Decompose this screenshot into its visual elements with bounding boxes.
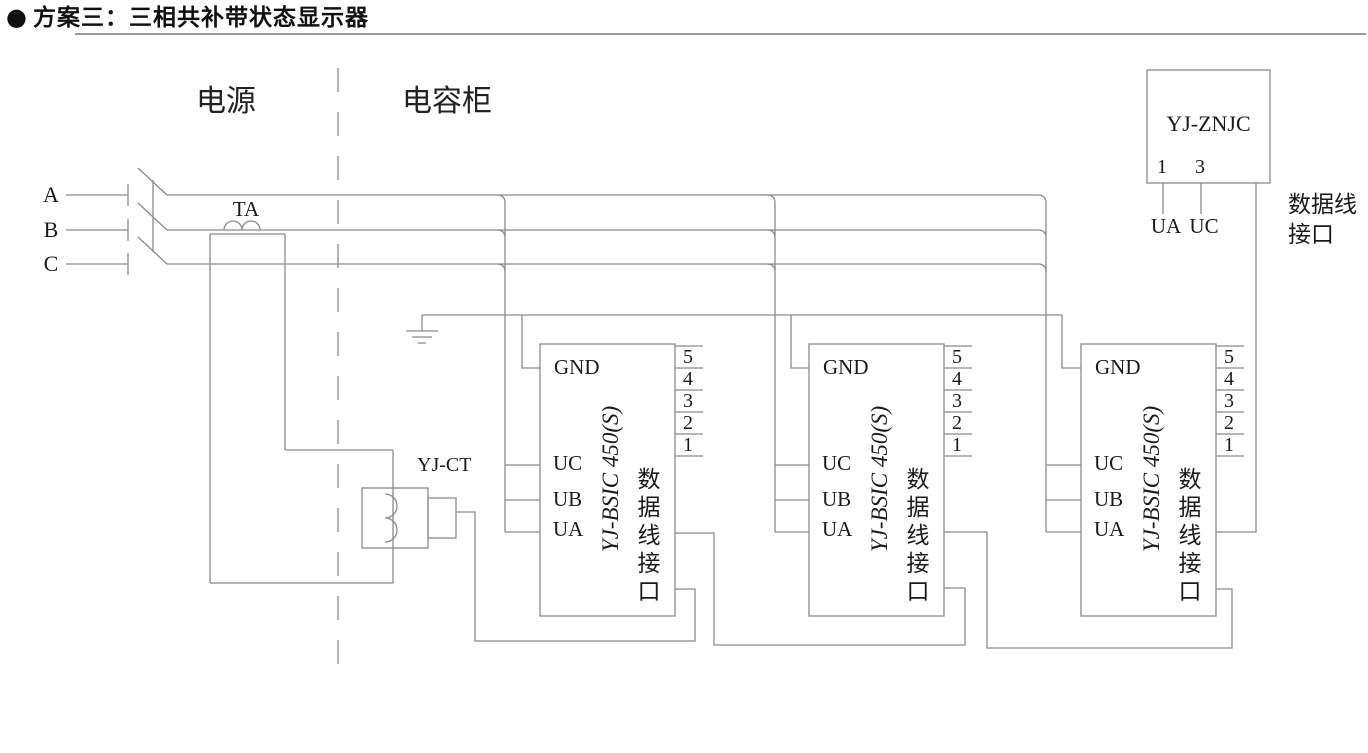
pin-5-label: 5 <box>677 346 699 368</box>
znjc-ua-label: UA <box>1149 215 1183 238</box>
pin-2-label: 2 <box>1218 412 1240 434</box>
znjc-outline <box>1147 70 1270 214</box>
gnd-pin-label: GND <box>554 356 600 379</box>
gnd-pin-label: GND <box>1095 356 1141 379</box>
gnd-pin-label: GND <box>823 356 869 379</box>
phase-riser-unit2 <box>767 195 809 532</box>
current-transformer-coil-icon <box>210 221 285 234</box>
pin-2-label: 2 <box>946 412 968 434</box>
znjc-model-label: YJ-ZNJC <box>1147 112 1270 136</box>
gnd-drop-wires <box>522 315 1081 368</box>
phase-label-a: A <box>40 183 62 207</box>
zone-label-power: 电源 <box>196 86 256 118</box>
pin-1-label: 1 <box>1218 434 1240 456</box>
uc-pin-label: UC <box>553 452 582 475</box>
ct-clamp-icon <box>362 488 456 548</box>
uc-pin-label: UC <box>1094 452 1123 475</box>
ub-pin-label: UB <box>553 488 582 511</box>
znjc-data-port-line2: 接口 <box>1288 220 1357 250</box>
page-title: 方案三：三相共补带状态显示器 <box>33 4 369 32</box>
data-port-label: 数据线接口 <box>637 467 663 617</box>
earth-ground-icon <box>406 315 438 343</box>
phase-label-b: B <box>40 218 62 242</box>
znjc-uc-label: UC <box>1187 215 1221 238</box>
pin-1-label: 1 <box>946 434 968 456</box>
pin-2-label: 2 <box>677 412 699 434</box>
unit-model-label: YJ-BSIC 450(S) <box>867 364 893 594</box>
ub-pin-label: UB <box>822 488 851 511</box>
uc-pin-label: UC <box>822 452 851 475</box>
pin-4-label: 4 <box>946 368 968 390</box>
phase-riser-unit3 <box>1038 195 1081 532</box>
ua-pin-label: UA <box>822 518 852 541</box>
data-port-label: 数据线接口 <box>1178 467 1204 617</box>
title-bullet-icon: ● <box>6 5 27 29</box>
pin-5-label: 5 <box>1218 346 1240 368</box>
yj-ct-label: YJ-CT <box>417 454 471 476</box>
ua-pin-label: UA <box>1094 518 1124 541</box>
ta-secondary-loop-wire <box>210 234 393 583</box>
pin-3-label: 3 <box>1218 390 1240 412</box>
pin-5-label: 5 <box>946 346 968 368</box>
ub-pin-label: UB <box>1094 488 1123 511</box>
znjc-data-port-label: 数据线 接口 <box>1288 190 1357 250</box>
unit-model-label: YJ-BSIC 450(S) <box>1139 364 1165 594</box>
three-pole-breaker-icon <box>128 168 167 275</box>
ua-pin-label: UA <box>553 518 583 541</box>
data-chain-wires <box>456 183 1256 648</box>
ta-label: TA <box>229 198 263 221</box>
zone-label-capacitor-cabinet: 电容柜 <box>402 86 492 118</box>
pin-4-label: 4 <box>677 368 699 390</box>
unit-model-label: YJ-BSIC 450(S) <box>598 364 624 594</box>
pin-4-label: 4 <box>1218 368 1240 390</box>
schematic-page: ● 方案三：三相共补带状态显示器 电源 电容柜 A B C TA YJ-CT G… <box>0 0 1368 753</box>
pin-1-label: 1 <box>677 434 699 456</box>
pin-3-label: 3 <box>677 390 699 412</box>
znjc-pin-1-label: 1 <box>1150 156 1174 178</box>
phase-label-c: C <box>40 252 62 276</box>
phase-riser-unit1 <box>497 195 540 532</box>
pin-3-label: 3 <box>946 390 968 412</box>
znjc-data-port-line1: 数据线 <box>1288 190 1357 220</box>
znjc-pin-3-label: 3 <box>1188 156 1212 178</box>
data-port-label: 数据线接口 <box>906 467 932 617</box>
